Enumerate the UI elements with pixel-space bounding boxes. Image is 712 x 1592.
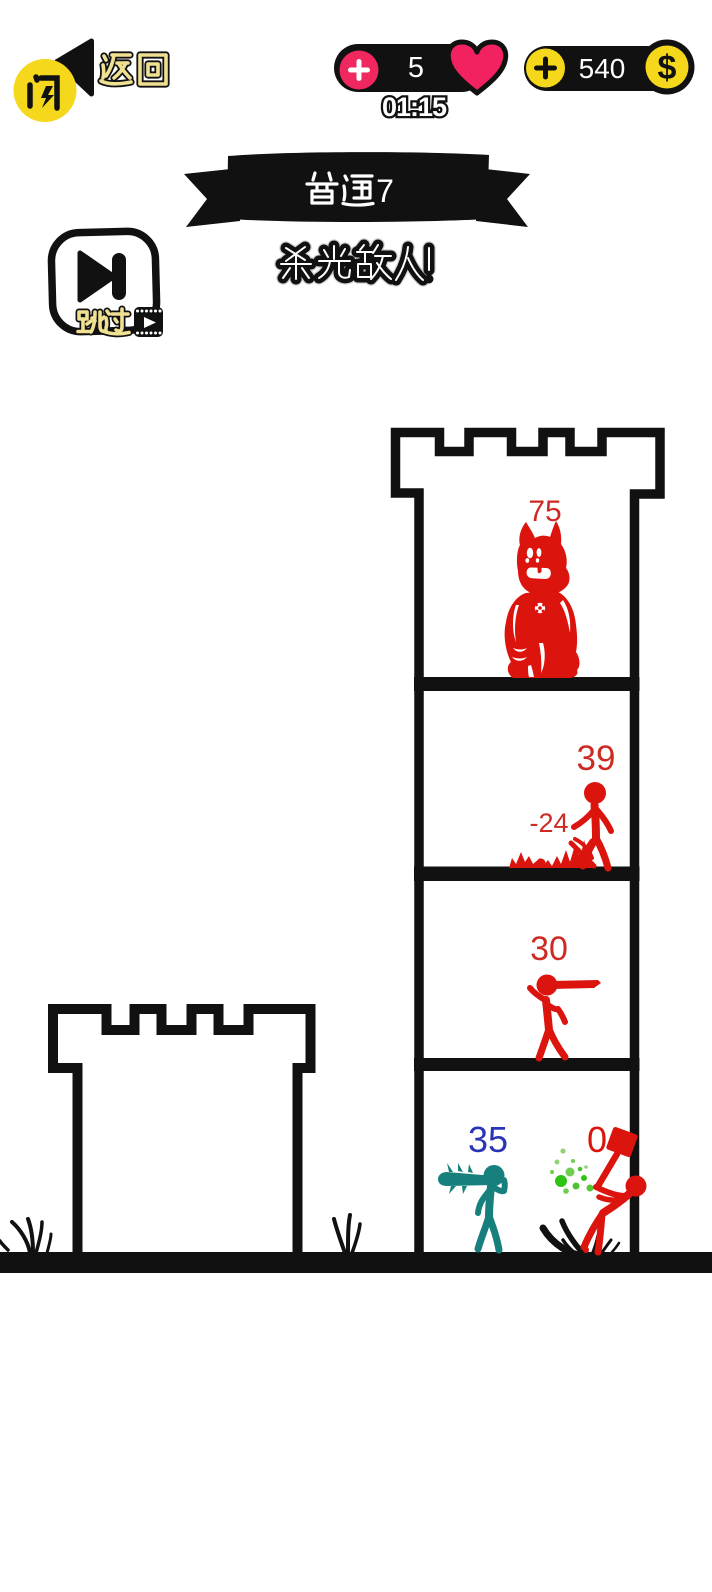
svg-text:35: 35 xyxy=(468,1119,508,1160)
svg-text:30: 30 xyxy=(530,930,568,968)
svg-text:$: $ xyxy=(658,49,677,87)
svg-text:0: 0 xyxy=(587,1119,607,1160)
svg-text:-24: -24 xyxy=(529,808,568,838)
svg-text:5: 5 xyxy=(408,52,424,84)
svg-text:540: 540 xyxy=(579,53,626,84)
svg-text:39: 39 xyxy=(577,739,616,778)
svg-text:7: 7 xyxy=(376,173,394,209)
svg-text:01:15: 01:15 xyxy=(382,92,447,122)
